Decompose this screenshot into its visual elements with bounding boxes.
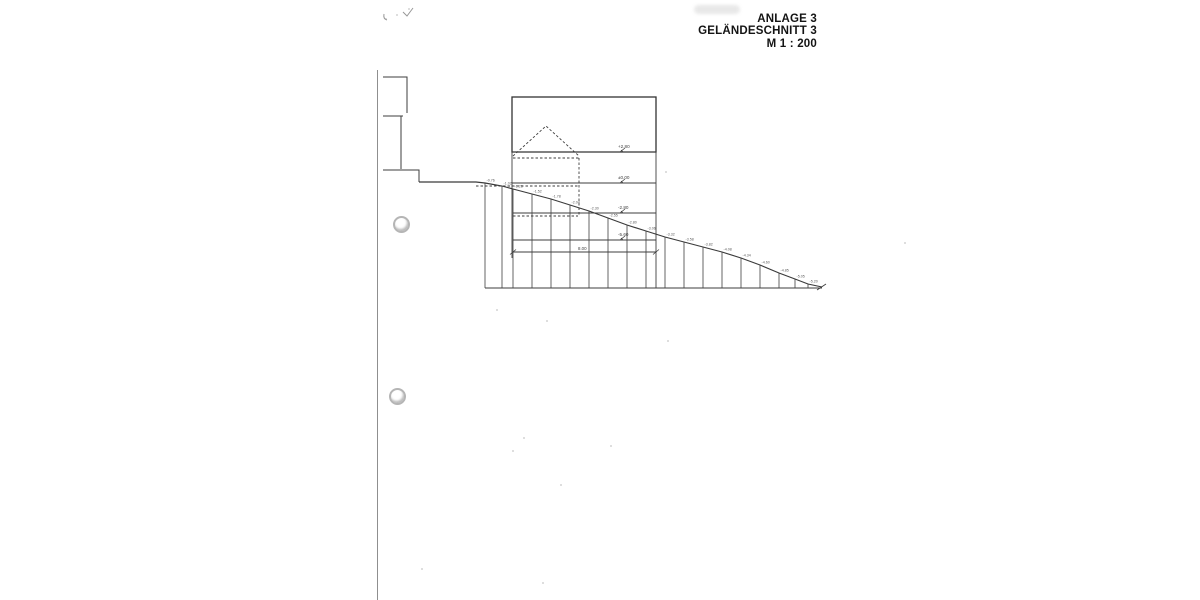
spot-elevation-label: -2.04	[572, 201, 580, 205]
spot-elevation-label: -5.20	[810, 280, 818, 284]
scan-speckle	[408, 8, 410, 10]
elevation-label: -5.60	[618, 232, 629, 237]
scan-speckle	[396, 14, 398, 16]
scan-speckle	[560, 484, 562, 486]
spot-elevation-label: -1.28	[515, 185, 523, 189]
scan-speckle	[665, 171, 667, 173]
dimension-label: 8.00	[578, 246, 587, 251]
building-outline	[512, 97, 656, 152]
spot-elevation-label: -2.30	[591, 207, 599, 211]
section-drawing: +2.80±0.00-2.80-5.608.00-0.76-1.02-1.28-…	[0, 0, 1200, 600]
spot-elevation-label: -1.52	[534, 190, 542, 194]
spot-elevation-label: -4.85	[781, 269, 789, 273]
scan-speckle	[512, 450, 514, 452]
spot-elevation-label: -5.05	[797, 275, 805, 279]
spot-elevation-label: -1.78	[553, 195, 561, 199]
spot-elevation-label: -3.32	[667, 233, 675, 237]
spot-elevation-label: -1.02	[504, 182, 512, 186]
scan-speckle	[421, 568, 423, 570]
elevation-label: +2.80	[618, 144, 630, 149]
scan-speckle	[904, 242, 906, 244]
elevation-label: -2.80	[618, 205, 629, 210]
spot-elevation-label: -4.34	[743, 254, 751, 258]
scan-artifact-mark	[403, 8, 413, 16]
spot-elevation-label: -4.08	[724, 248, 732, 252]
scan-speckle	[385, 18, 387, 20]
scan-speckle	[496, 309, 498, 311]
spot-elevation-label: -2.55	[610, 214, 618, 218]
scan-speckle	[610, 445, 612, 447]
spot-elevation-label: -2.80	[629, 221, 637, 225]
scan-speckle	[667, 340, 669, 342]
spot-elevation-label: -4.60	[762, 261, 770, 265]
scanned-page: ANLAGE 3 GELÄNDESCHNITT 3 M 1 : 200 +2.8…	[0, 0, 1200, 600]
elevation-label: ±0.00	[618, 175, 630, 180]
terrain-end-tick	[817, 284, 826, 290]
spot-elevation-label: -3.58	[686, 238, 694, 242]
spot-elevation-label: -3.06	[648, 227, 656, 231]
scan-speckle	[546, 320, 548, 322]
profile-line	[383, 77, 407, 113]
spot-elevation-label: -0.76	[487, 179, 495, 183]
profile-line	[383, 170, 419, 182]
scan-speckle	[542, 582, 544, 584]
scan-speckle	[523, 437, 525, 439]
spot-elevation-label: -3.82	[705, 243, 713, 247]
